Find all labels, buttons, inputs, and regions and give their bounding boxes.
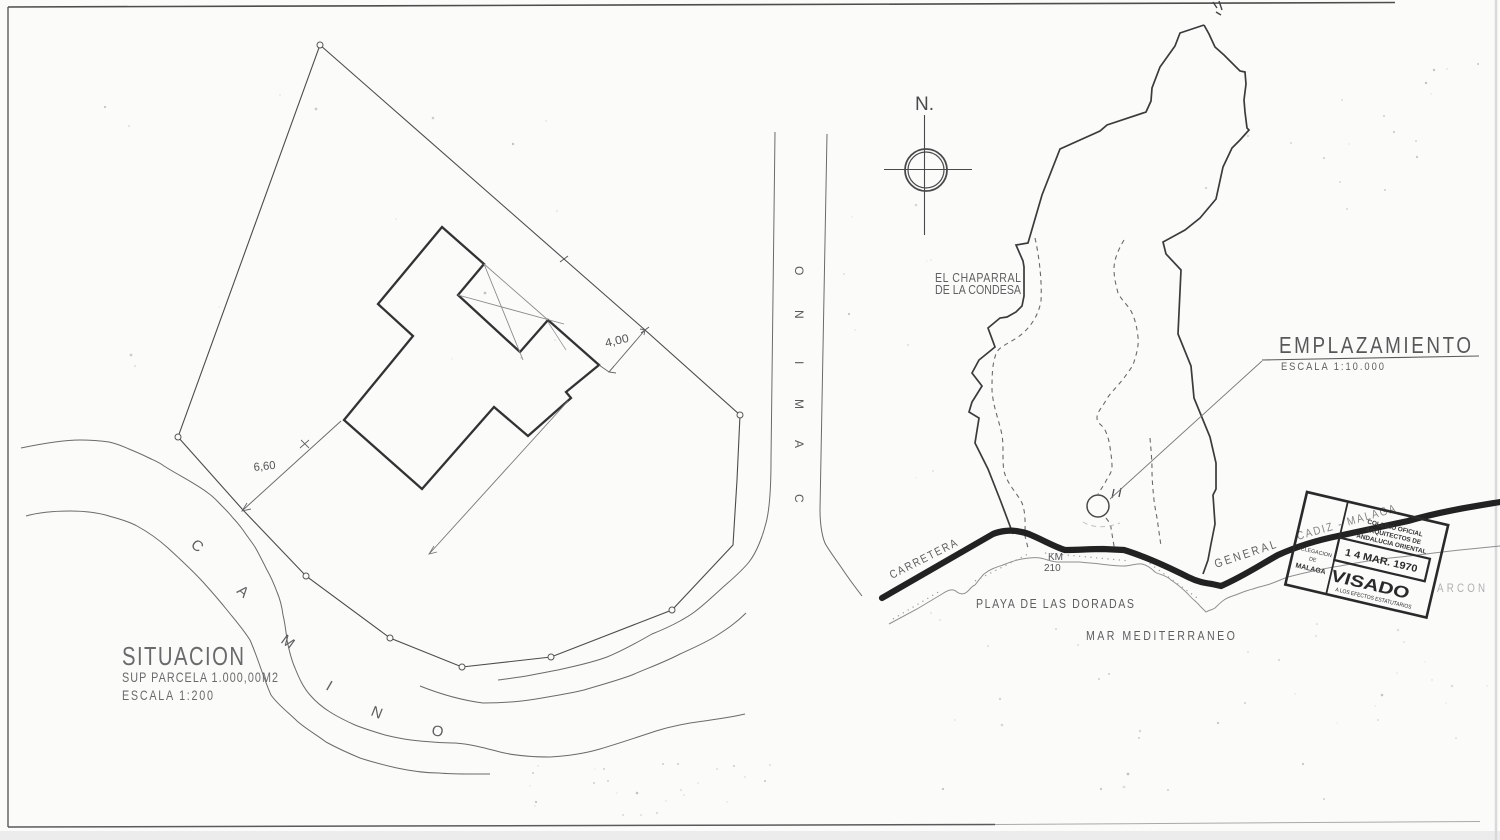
svg-text:N.: N. (915, 94, 934, 115)
svg-text:ESCALA 1:200: ESCALA 1:200 (122, 688, 213, 703)
svg-text:M: M (792, 399, 806, 409)
svg-text:6,60: 6,60 (253, 460, 276, 474)
svg-text:EMPLAZAMIENTO: EMPLAZAMIENTO (1279, 333, 1471, 358)
svg-text:I: I (792, 361, 806, 364)
svg-text:SITUACION: SITUACION (122, 642, 244, 671)
svg-text:N: N (792, 310, 806, 319)
svg-text:KM: KM (1048, 552, 1063, 563)
svg-text:C: C (792, 494, 806, 503)
svg-text:DE LA CONDESA: DE LA CONDESA (935, 283, 1021, 297)
svg-text:210: 210 (1044, 563, 1061, 574)
svg-text:O: O (792, 266, 806, 275)
svg-text:MAR MEDITERRANEO: MAR MEDITERRANEO (1086, 629, 1235, 643)
svg-text:SUP PARCELA 1.000,00M2: SUP PARCELA 1.000,00M2 (122, 670, 278, 685)
svg-text:PLAYA DE LAS DORADAS: PLAYA DE LAS DORADAS (976, 597, 1134, 611)
svg-text:A: A (792, 440, 806, 448)
